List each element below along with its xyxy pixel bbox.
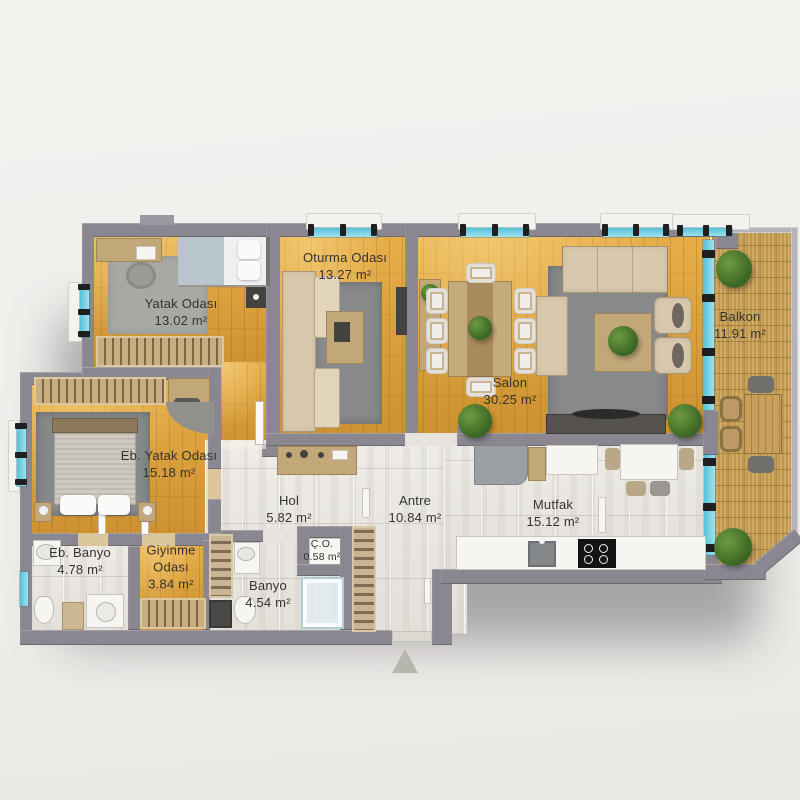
balcony-chair [748, 376, 774, 393]
room-label-antre: Antre 10.84 m² [389, 492, 442, 526]
window-frame-bracket [703, 503, 716, 511]
faucet [539, 538, 545, 544]
balcony-railing [791, 227, 798, 542]
room-name: Ç.O. [304, 538, 341, 551]
nightstand-knob [253, 294, 259, 300]
door-threshold [263, 530, 297, 542]
room-area: 4.78 m² [49, 561, 111, 578]
room-name: Oturma Odası [303, 249, 387, 266]
window-frame-bracket [371, 224, 377, 236]
entrance-threshold [392, 631, 432, 642]
room-label-yatak-odasi: Yatak Odası 13.02 m² [145, 295, 218, 329]
wardrobe [96, 336, 224, 367]
window-frame-bracket [602, 224, 608, 236]
ac-ledge [140, 215, 174, 225]
window-frame-bracket [15, 479, 27, 485]
room-area: 11.91 m² [714, 325, 766, 342]
room-area: 13.27 m² [303, 266, 387, 283]
shower-drain [96, 602, 116, 622]
window-frame-bracket [702, 250, 715, 258]
pillow [238, 240, 260, 259]
decor-item [318, 452, 324, 458]
kitchen-cabinet [528, 447, 546, 481]
dining-chair [514, 288, 536, 314]
bed-headboard [52, 418, 138, 433]
radiator [598, 497, 606, 533]
window-frame-bracket [726, 225, 732, 236]
decor-item [332, 450, 348, 460]
room-name: Banyo [245, 577, 290, 594]
room-name: Balkon [714, 308, 766, 325]
wardrobe [34, 377, 166, 405]
dining-chair [426, 348, 448, 374]
table-centerpiece-plant [468, 316, 492, 340]
room-label-hol: Hol 5.82 m² [266, 492, 311, 526]
room-label-giyinme-odasi: Giyinme Odası 3.84 m² [131, 541, 211, 592]
floor-plan-canvas: Yatak Odası 13.02 m² Oturma Odası 13.27 … [0, 0, 800, 800]
dining-chair [466, 263, 496, 283]
tv [396, 287, 407, 335]
balcony-sliding-door-glass [703, 240, 714, 410]
room-label-balkon: Balkon 11.91 m² [714, 308, 766, 342]
plant [458, 404, 492, 438]
room-name: Mutfak [527, 496, 580, 513]
fridge [474, 445, 528, 485]
window-frame-bracket [460, 224, 466, 236]
decor-item [300, 450, 308, 458]
door-threshold [405, 433, 457, 446]
kitchen-chair [605, 448, 620, 470]
window-frame-bracket [78, 309, 90, 315]
sofa [282, 271, 316, 432]
entrance-triangle-icon [392, 649, 418, 673]
room-area: 4.54 m² [245, 594, 290, 611]
wall [440, 569, 722, 584]
pillow [60, 495, 96, 515]
room-area: 5.82 m² [266, 509, 311, 526]
kitchen-chair [650, 481, 670, 496]
pillow [238, 261, 260, 280]
window-glass [20, 572, 28, 606]
room-label-banyo: Banyo 4.54 m² [245, 577, 290, 611]
room-area: 10.84 m² [389, 509, 442, 526]
room-label-mutfak: Mutfak 15.12 m² [527, 496, 580, 530]
decor-item [286, 452, 292, 458]
armchair-back [672, 303, 684, 328]
sofa-cushion [314, 368, 340, 428]
radiator [362, 488, 370, 518]
cooktop [578, 539, 616, 568]
tv [572, 409, 640, 419]
room-area: 0.58 m² [304, 551, 341, 564]
window-frame-bracket [78, 331, 90, 337]
room-area: 30.25 m² [484, 391, 537, 408]
radiator [424, 578, 431, 604]
plant [714, 528, 752, 566]
room-area: 15.12 m² [527, 513, 580, 530]
room-label-salon: Salon 30.25 m² [484, 374, 537, 408]
window-frame-bracket [633, 224, 639, 236]
pillow [98, 495, 130, 515]
room-name: Giyinme Odası [131, 541, 211, 575]
dining-chair [426, 288, 448, 314]
window-frame-bracket [677, 225, 683, 236]
room-label-eb-banyo: Eb. Banyo 4.78 m² [49, 544, 111, 578]
window-frame-bracket [703, 458, 716, 466]
room-label-eb-yatak-odasi: Eb. Yatak Odası 15.18 m² [121, 447, 217, 481]
window-frame-bracket [15, 423, 27, 429]
sofa [562, 246, 668, 293]
window-frame-bracket [702, 294, 715, 302]
wardrobe [140, 598, 206, 629]
window-frame-bracket [663, 224, 669, 236]
kitchen-table [620, 444, 678, 480]
balcony-chair [748, 456, 774, 473]
wall [297, 564, 345, 576]
window-frame-bracket [308, 224, 314, 236]
dining-chair [426, 318, 448, 344]
window-frame-bracket [15, 452, 27, 458]
shoe-cabinet [352, 526, 376, 632]
burner [584, 555, 593, 564]
kitchen-island [546, 445, 598, 475]
room-area: 13.02 m² [145, 312, 218, 329]
window-frame-bracket [78, 284, 90, 290]
kitchen-chair [626, 481, 646, 496]
burner [599, 555, 608, 564]
kitchen-sink [528, 541, 556, 567]
washing-machine [209, 600, 232, 628]
room-name: Eb. Banyo [49, 544, 111, 561]
room-name: Yatak Odası [145, 295, 218, 312]
room-name: Hol [266, 492, 311, 509]
loveseat [536, 296, 568, 376]
lamp [143, 506, 152, 515]
burner [599, 544, 608, 553]
window-frame-bracket [523, 224, 529, 236]
window-frame-bracket [702, 348, 715, 356]
window-frame-bracket [340, 224, 346, 236]
shower-enclosure [301, 577, 344, 629]
room-name: Antre [389, 492, 442, 509]
desk-paper [136, 246, 156, 260]
bath-mat [62, 602, 84, 630]
balcony-chair [720, 426, 742, 452]
balcony-chair [720, 396, 742, 422]
room-name: Salon [484, 374, 537, 391]
balcony-table [744, 394, 782, 454]
dining-chair [514, 318, 536, 344]
room-area: 3.84 m² [131, 576, 211, 593]
window-frame-bracket [492, 224, 498, 236]
laundry-shelf [209, 534, 233, 598]
window-frame-bracket [703, 225, 709, 236]
door-leaf [256, 402, 263, 444]
wall [266, 433, 405, 446]
plant [668, 404, 702, 438]
kitchen-chair [679, 448, 694, 470]
sink-basin [237, 547, 255, 561]
plant [716, 250, 752, 288]
room-label-oturma-odasi: Oturma Odası 13.27 m² [303, 249, 387, 283]
wall [20, 630, 392, 645]
plant [608, 326, 638, 356]
burner [584, 544, 593, 553]
coffee-table-item [334, 322, 350, 342]
room-area: 15.18 m² [121, 464, 217, 481]
window-frame-bracket [702, 396, 715, 404]
room-name: Eb. Yatak Odası [121, 447, 217, 464]
desk-chair [126, 262, 156, 289]
dining-chair [514, 348, 536, 374]
armchair-back [672, 343, 684, 368]
wall [703, 410, 718, 455]
toilet [34, 596, 54, 624]
lamp [39, 506, 48, 515]
room-label-co: Ç.O. 0.58 m² [304, 538, 341, 564]
